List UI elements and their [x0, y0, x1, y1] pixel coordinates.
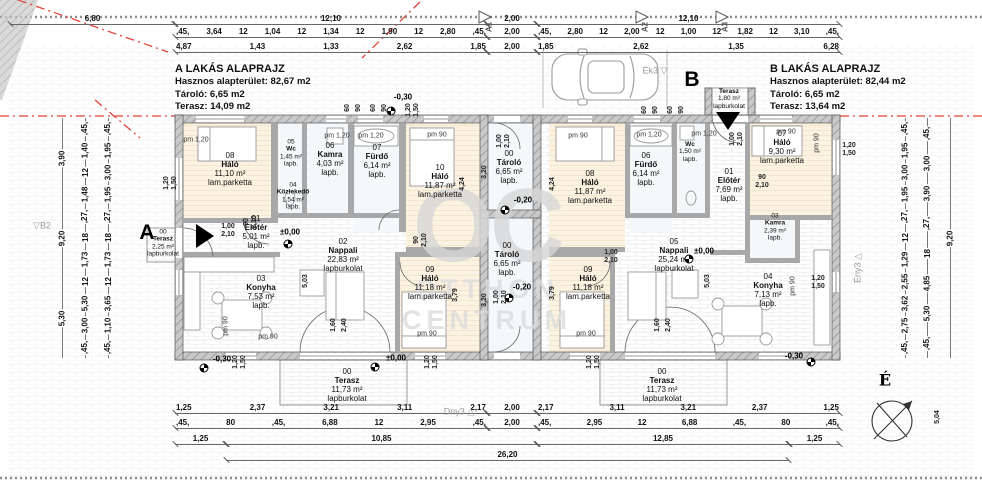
marker-k3: Ék3 ▽	[643, 66, 668, 77]
dimension-value: 1,00	[681, 27, 697, 37]
dimension-value: 1,48	[81, 186, 90, 204]
opening-size-label: 1,201,50	[405, 103, 421, 117]
dimension-value: 2,00	[504, 27, 520, 37]
apartment-b-title: B LAKÁS ALAPRAJZ	[770, 62, 906, 76]
opening-size-label: 60	[667, 106, 675, 114]
dimension-value: 5,30	[81, 295, 90, 313]
parapet-height-label: pm 1,20	[324, 133, 349, 140]
elevation-point-icon	[807, 358, 816, 367]
r-floor: lapb.	[246, 302, 275, 311]
dimension-value: 1,85	[538, 42, 554, 52]
opening-size-label: 3,20	[481, 165, 489, 179]
opening-size-label: 5,03	[302, 274, 310, 288]
dimension-chain-segment: 12,85	[537, 434, 789, 445]
dimension-value: 2,75	[901, 316, 910, 334]
dimension-value: 1,85	[470, 42, 486, 52]
r-name: Kamra	[764, 220, 786, 227]
opening-size-label: 1,201,50	[586, 355, 602, 369]
opening-size-label: 1,002,10	[221, 223, 235, 239]
dimension-value: 9,20	[58, 229, 67, 247]
dimension-value: 1,33	[323, 42, 339, 52]
dimension-value: 12,85	[653, 434, 673, 444]
dimension-value: 5,30	[58, 309, 67, 327]
dimension-value: 1,90	[382, 27, 398, 37]
room-label-kamra-2: 06Kamra4,03 m²lapb.	[316, 142, 343, 178]
dimension-value: 3,62	[901, 295, 910, 313]
dimension-value: 2,17	[538, 403, 554, 413]
elevation-label: -0,20	[514, 196, 532, 205]
dimension-value: 4,87	[176, 42, 192, 52]
dimension-value: 2,95	[587, 418, 603, 428]
opening-size-label: 2,40	[341, 318, 349, 332]
dimension-value: 1,35	[728, 42, 744, 52]
dimension-value: 2,80	[567, 27, 583, 37]
r-floor: lapb.	[632, 179, 659, 188]
floor-plan-screenshot: OC OTTHON CENTRUM A LAKÁS ALAPRAJZ Haszn…	[0, 0, 982, 500]
apartment-b-area: Hasznos alapterület: 82,44 m2	[770, 76, 906, 88]
parapet-height-label: pm 1,20	[636, 132, 661, 139]
r-floor: lam.parketta	[760, 157, 804, 166]
dimension-value: 1,34	[323, 27, 339, 37]
dimension-value: 2,37	[250, 403, 266, 413]
dimension-value: 1,82	[737, 27, 753, 37]
vertical-dimension-chain: ,45,1,953,001,95,27,121,292,553,622,75,4…	[898, 118, 912, 358]
vertical-dimension-chain: ,45,3,003,90,27,184,855,30,45,	[920, 118, 934, 358]
r-floor: lapb.	[280, 160, 302, 167]
elevation-point-icon	[284, 240, 293, 249]
r-num: 04	[277, 181, 310, 188]
title-block-apartment-a: A LAKÁS ALAPRAJZ Hasznos alapterület: 82…	[175, 62, 311, 113]
r-floor: lapburkolat	[147, 250, 179, 257]
dimension-value: 3,21	[680, 403, 696, 413]
r-area: 1,80 m²	[713, 95, 745, 102]
parapet-height-label: pm 1,20	[183, 137, 208, 144]
elevation-label: ±0,00	[280, 228, 300, 237]
elevation-label: -0,30	[394, 93, 412, 102]
dimension-chain-segment: 2,00	[487, 403, 537, 414]
r-floor: lapb.	[363, 171, 390, 180]
r-num: 03	[764, 212, 786, 219]
dimension-chain-segment: 1,25	[789, 434, 840, 445]
parapet-height-label: pm 90	[417, 331, 436, 338]
room-label-háló-4: 10Háló11,87 m²lam.parketta	[418, 164, 462, 200]
r-num: 05	[280, 138, 302, 145]
dimension-value: 3,11	[609, 403, 624, 413]
r-name: Közlekedő	[277, 189, 310, 196]
opening-size-label: 1,002,10	[604, 249, 618, 265]
dimension-value: ,45,	[81, 121, 90, 136]
dimension-value: 3,21	[323, 403, 339, 413]
dimension-value: ,45,	[473, 418, 486, 428]
dimension-value: 2,95	[420, 418, 436, 428]
dimension-value: 18	[923, 248, 932, 259]
dimension-chain-segment: 6,80	[10, 14, 175, 25]
dimension-value: 2,00	[504, 403, 520, 413]
elevation-point-icon	[371, 363, 380, 372]
dimension-value: 12	[81, 167, 90, 178]
apartment-a-area: Hasznos alapterület: 82,67 m2	[175, 76, 311, 88]
opening-size-label: 2,40	[665, 318, 673, 332]
dimension-value: ,45,	[104, 121, 113, 136]
opening-size-label: 90	[355, 104, 363, 112]
r-name: Wc	[679, 141, 701, 148]
dimension-value: 3,00	[923, 154, 932, 172]
opening-size-label: 1,201,50	[811, 275, 825, 291]
r-area: 1,54 m²	[277, 196, 310, 203]
opening-size-label: 3,20	[481, 293, 489, 307]
parapet-height-label: pm 90	[814, 133, 821, 152]
dimension-value: 1,25	[193, 434, 209, 444]
elevation-label: ±0,00	[694, 247, 714, 256]
vertical-dimension-chain: ,45,1,953,001,95,27,181,73123,651,10,45,	[101, 118, 115, 358]
dimension-value: 1,73	[81, 251, 90, 269]
opening-size-label: 5,03	[704, 274, 712, 288]
dimension-value: 12	[297, 27, 306, 37]
r-floor: lapb.	[495, 177, 522, 186]
dimension-value: 6,88	[682, 418, 698, 428]
opening-size-label: 1,60	[330, 318, 338, 332]
dimension-value: ,45,	[826, 27, 839, 37]
dimension-chain-segment: 1,252,373,213,112,17	[175, 403, 487, 414]
dimension-value: ,45,	[81, 339, 90, 354]
room-label-kamra-19: 03Kamra2,39 m²lapb.	[764, 212, 786, 241]
parapet-height-label: pm 90	[790, 276, 797, 295]
elevation-label: -0,30	[213, 355, 231, 364]
r-floor: lapb.	[679, 156, 701, 163]
dimension-value: ,45,	[176, 418, 189, 428]
marker-: É	[879, 371, 891, 390]
opening-size-label: 60	[641, 106, 649, 114]
marker-a: A	[139, 221, 154, 245]
dimension-chain-segment: 10,85	[226, 434, 537, 445]
opening-size-label: 3,79	[549, 286, 557, 300]
dimension-chain-segment: 1,25	[175, 434, 226, 445]
dimension-value: 2,00	[504, 14, 520, 24]
dimension-value: 12,10	[321, 14, 341, 24]
opening-size-label: 1,002,10	[496, 134, 512, 148]
dimension-value: 2,62	[397, 42, 413, 52]
dimension-chain-segment: 26,20	[226, 450, 789, 461]
dimension-chain-segment: 1,852,621,356,28	[537, 42, 840, 53]
vertical-dimension-chain: 3,909,205,30	[55, 118, 69, 358]
dimension-value: 1,95	[104, 142, 113, 160]
opening-size-label: 4,24	[549, 177, 557, 191]
dimension-value: 2,00	[504, 418, 520, 428]
opening-size-label: 902,10	[243, 215, 259, 229]
room-label-fürdő-3: 07Fürdő6,14 m²lapb.	[363, 144, 390, 180]
opening-size-label: 90	[652, 106, 660, 114]
dimension-value: 2,00	[624, 27, 640, 37]
dimension-value: 80	[781, 418, 790, 428]
dimension-value: 12	[656, 27, 665, 37]
dimension-value: ,27,	[81, 208, 90, 223]
room-label-terasz-13: 00Terasz11,73 m²lapburkolat	[327, 368, 366, 404]
opening-size-label: 902,10	[755, 174, 769, 190]
r-floor: lam.parketta	[568, 197, 612, 206]
room-label-nappali-8: 02Nappali22,83 m²lapburkolat	[323, 238, 362, 274]
r-floor: lapb.	[715, 195, 742, 204]
title-block-apartment-b: B LAKÁS ALAPRAJZ Hasznos alapterület: 82…	[770, 62, 906, 113]
r-area: 1,45 m²	[280, 153, 302, 160]
dimension-value: 1,73	[104, 251, 113, 269]
dimension-value: 12	[81, 276, 90, 287]
dimension-chain-segment: 2,00	[487, 14, 537, 25]
opening-size-label: 4,24	[459, 177, 467, 191]
dimension-chain-segment: ,45,80,45,6,88122,95,45,	[175, 418, 487, 429]
apartment-b-terrace: Terasz: 13,64 m2	[770, 101, 906, 113]
parapet-height-label: pm 90	[223, 316, 230, 335]
dimension-chain-segment: 2,173,113,212,371,25	[537, 403, 840, 414]
dimension-value: 3,11	[397, 403, 412, 413]
dimension-value: 1,43	[250, 42, 266, 52]
dimension-value: 12	[638, 418, 647, 428]
opening-size-label: 1,60	[654, 318, 662, 332]
dimension-value: ,45,	[901, 121, 910, 136]
dimension-chain-segment: 4,871,431,332,621,85	[175, 42, 487, 53]
room-label-fürdő-15: 06Fürdő6,14 m²lapb.	[632, 152, 659, 188]
elevation-label: -0,20	[513, 283, 531, 292]
dimension-value: 12	[356, 27, 365, 37]
dimension-value: 3,10	[794, 27, 810, 37]
dimension-chain-segment: 2,00	[487, 418, 537, 429]
dimension-value: 1,95	[104, 186, 113, 204]
parapet-height-label: pm 90	[427, 132, 446, 139]
opening-size-label: 5,04	[934, 410, 942, 424]
dimension-value: 1,95	[901, 142, 910, 160]
dimension-value: ,45,	[901, 339, 910, 354]
dimension-value: ,45,	[538, 418, 551, 428]
marker-a3: A3	[721, 22, 730, 32]
elevation-point-icon	[200, 364, 209, 373]
dimension-value: 1,25	[807, 434, 823, 444]
room-label-háló-14: 08Háló11,87 m²lam.parketta	[568, 170, 612, 206]
dimension-value: 12	[239, 27, 248, 37]
room-label-háló-0: 08Háló11,10 m²lam.parketta	[208, 152, 252, 188]
dimension-value: 12,10	[678, 14, 698, 24]
dimension-value: 2,80	[440, 27, 456, 37]
room-label-konyha-20: 04Konyha7,13 m²lapb.	[753, 273, 782, 309]
dimension-value: 12	[104, 276, 113, 287]
dimension-value: 12	[769, 27, 778, 37]
opening-size-label: 1,201,50	[842, 142, 856, 158]
dimension-value: 4,85	[923, 274, 932, 292]
dimension-value: 1,95	[901, 186, 910, 204]
dimension-value: 1,04	[265, 27, 281, 37]
dimension-value: 12	[901, 233, 910, 244]
opening-size-label: 90	[678, 106, 686, 114]
dimension-chain-segment: 2,00	[487, 27, 537, 38]
dimension-chain-segment: ,45,2,80122,00121,00121,82123,10,45,	[537, 27, 840, 38]
marker-b: B	[684, 68, 699, 92]
opening-size-label: 3,79	[452, 288, 460, 302]
dimension-value: 6,80	[85, 14, 101, 24]
dimension-value: 6,88	[322, 418, 338, 428]
opening-size-label: 1,201,50	[163, 176, 179, 190]
r-floor: lapburkolat	[713, 103, 745, 110]
opening-size-label: 902,10	[413, 233, 429, 247]
elevation-point-icon	[501, 206, 510, 215]
dimension-value: 2,00	[504, 42, 520, 52]
apartment-a-terrace: Terasz: 14,09 m2	[175, 101, 311, 113]
r-floor: lapb.	[764, 234, 786, 241]
opening-size-label: 60	[344, 104, 352, 112]
dimension-value: 1,29	[901, 251, 910, 269]
room-label-wc-16: Wc1,50 m²lapb.	[679, 141, 701, 163]
dimension-value: 12	[414, 27, 423, 37]
r-area: 1,50 m²	[679, 148, 701, 155]
parapet-height-label: pm 90	[258, 334, 277, 341]
dimension-value: ,27,	[104, 208, 113, 223]
marker-dny3: Dny3 △	[444, 407, 474, 418]
parapet-height-label: pm 90	[776, 129, 795, 136]
r-floor: lapb.	[277, 203, 310, 210]
dimension-value: 80	[226, 418, 235, 428]
marker-b2: ▽B2	[33, 221, 51, 232]
r-floor: lapb.	[493, 269, 520, 278]
dimension-value: 3,00	[104, 164, 113, 182]
parapet-height-label: pm 90	[568, 133, 587, 140]
dimension-chain-segment: 12,10	[175, 14, 487, 25]
elevation-label: -0,30	[785, 352, 803, 361]
marker-a2: A2	[641, 22, 650, 32]
dimension-value: ,45,	[826, 418, 839, 428]
parapet-height-label: pm 1,20	[691, 131, 716, 138]
dimension-chain-segment: 2,00	[487, 42, 537, 53]
dimension-value: 1,25	[176, 403, 192, 413]
dimension-value: 3,90	[923, 184, 932, 202]
dimension-chain-segment: ,45,2,95126,88,45,80,45,	[537, 418, 840, 429]
parapet-height-label: pm 90	[576, 331, 595, 338]
room-label-konyha-9: 03Konyha7,53 m²lapb.	[246, 275, 275, 311]
dimension-value: ,27,	[901, 208, 910, 223]
dimension-value: 2,55	[901, 273, 910, 291]
r-floor: lam.parketta	[208, 179, 252, 188]
dimension-value: ,45,	[104, 339, 113, 354]
dimension-value: ,27,	[923, 215, 932, 230]
dimension-value: 10,85	[371, 434, 391, 444]
dimension-value: 3,64	[206, 27, 222, 37]
room-label-közlekedő-5: 04Közlekedő1,54 m²lapb.	[277, 181, 310, 210]
dimension-value: ,45,	[923, 125, 932, 140]
opening-size-label: 60	[370, 104, 378, 112]
opening-size-label: 90	[381, 104, 389, 112]
dimension-value: ,45,	[176, 27, 189, 37]
room-label-tároló-11: 00Tároló6,65 m²lapb.	[495, 150, 522, 186]
elevation-point-icon	[685, 255, 694, 264]
r-floor: lam.parketta	[418, 191, 462, 200]
dimension-value: 18	[104, 233, 113, 244]
r-floor: lapb.	[242, 242, 269, 251]
r-floor: lapburkolat	[654, 265, 693, 274]
room-label-terasz-23: Terasz1,80 m²lapburkolat	[713, 88, 745, 110]
dimension-value: 3,90	[58, 149, 67, 167]
parapet-height-label: pm 1,20	[358, 133, 383, 140]
marker-ny3: Ény3 △	[853, 253, 864, 283]
r-area: 2,39 m²	[764, 227, 786, 234]
dimension-value: 3,00	[81, 316, 90, 334]
r-name: Terasz	[713, 88, 745, 95]
room-label-háló-10: 09Háló11,18 m²lam.parketta	[408, 266, 452, 302]
dimension-chain-segment: 12,10	[537, 14, 840, 25]
opening-size-label: 1,002,10	[493, 290, 509, 304]
dimension-value: 1,40	[81, 142, 90, 160]
room-label-terasz-24: 00Terasz11,73 m²lapburkolat	[642, 368, 681, 404]
apartment-a-title: A LAKÁS ALAPRAJZ	[175, 62, 311, 76]
dimension-value: 18	[81, 233, 90, 244]
dimension-value: 3,00	[901, 164, 910, 182]
dimension-value: 26,20	[497, 450, 517, 460]
dimension-value: 6,28	[823, 42, 839, 52]
dimension-value: 1,25	[823, 403, 839, 413]
room-label-wc-1: 05Wc1,45 m²lapb.	[280, 138, 302, 167]
opening-size-label: 1,201,50	[232, 355, 248, 369]
dimension-value: 12	[599, 27, 608, 37]
dimension-value: ,45,	[733, 418, 746, 428]
dimension-value: 1,10	[104, 316, 113, 334]
apartment-b-storage: Tároló: 6,65 m2	[770, 89, 906, 101]
marker-a1: A1	[485, 22, 494, 32]
vertical-dimension-chain: 9,20	[943, 118, 957, 358]
elevation-label: ±0,00	[386, 354, 406, 363]
r-floor: lam.parketta	[408, 293, 452, 302]
dimension-value: 9,20	[946, 229, 955, 247]
dimension-value: 5,30	[923, 304, 932, 322]
dimension-value: ,45,	[538, 27, 551, 37]
dimension-value: 12	[374, 418, 383, 428]
r-name: Wc	[280, 146, 302, 153]
r-floor: lapb.	[316, 169, 343, 178]
room-label-tároló-12: 00Tároló6,65 m²lapb.	[493, 242, 520, 278]
room-label-háló-22: 09Háló11,18 m²lam.parketta	[566, 266, 610, 302]
opening-size-label: 1,002,10	[729, 132, 745, 146]
r-floor: lam.parketta	[566, 293, 610, 302]
apartment-a-storage: Tároló: 6,65 m2	[175, 89, 311, 101]
vertical-dimension-chain: ,45,1,40121,48,27,181,73125,303,00,45,	[78, 118, 92, 358]
room-label-előtér-17: 01Előtér7,69 m²lapb.	[715, 168, 742, 204]
r-floor: lapburkolat	[323, 265, 362, 274]
dimension-value: ,45,	[272, 418, 285, 428]
dimension-chain-segment: ,45,3,64121,04121,34121,90122,80,45,	[175, 27, 487, 38]
dimension-value: 2,37	[752, 403, 768, 413]
opening-size-label: 1,201,50	[424, 355, 440, 369]
dimension-value: 2,62	[633, 42, 649, 52]
dimension-value: ,45,	[923, 335, 932, 350]
r-floor: lapb.	[753, 300, 782, 309]
dimension-value: 3,65	[104, 295, 113, 313]
